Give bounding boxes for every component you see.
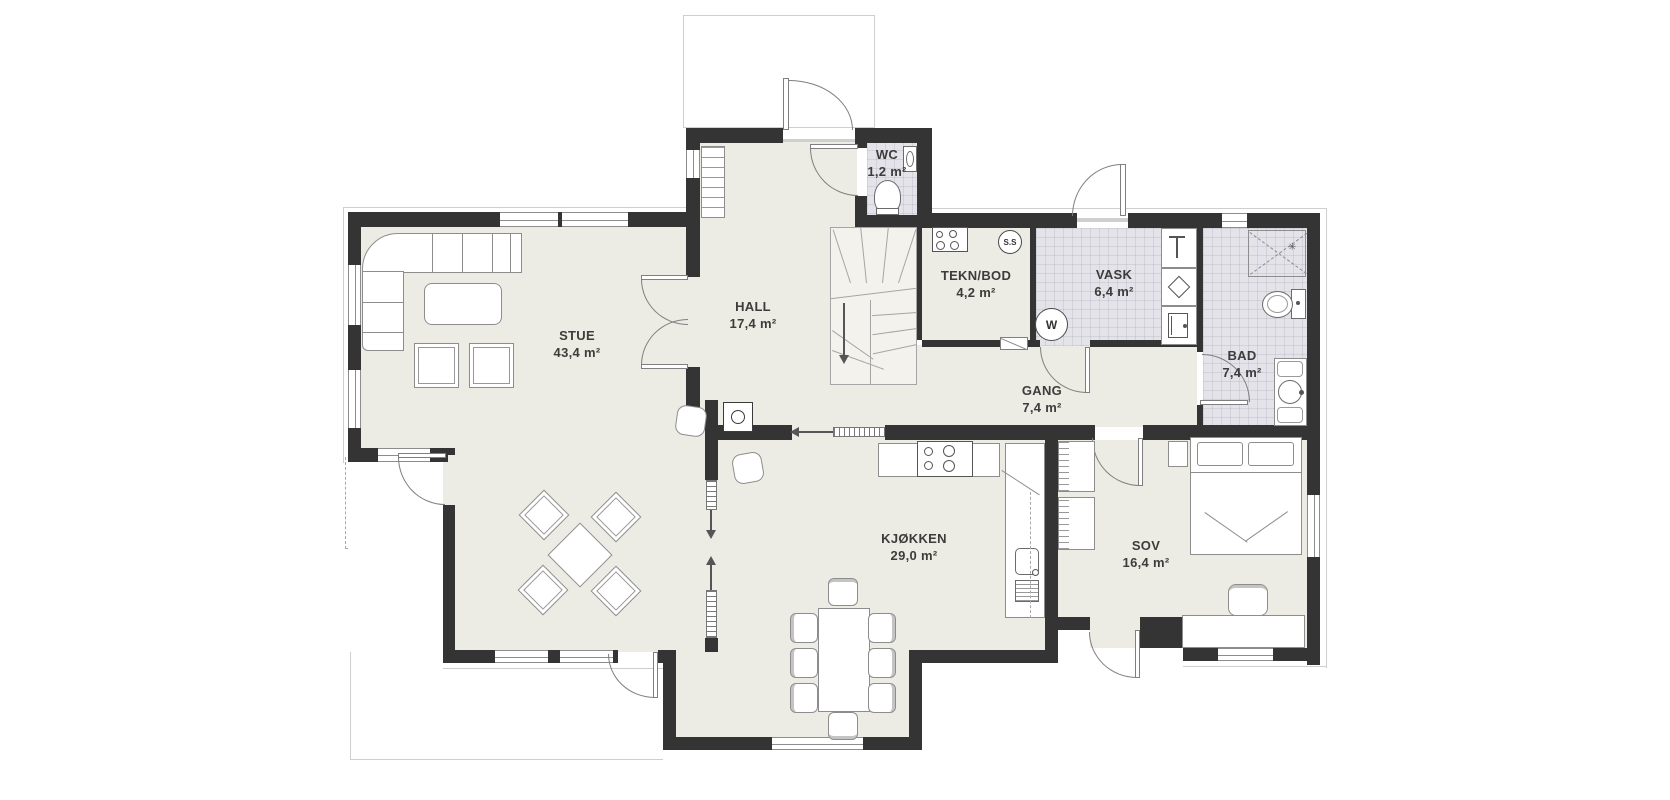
facade-outline bbox=[343, 207, 701, 208]
blanket-line bbox=[1190, 472, 1302, 473]
dining-chair bbox=[868, 648, 896, 678]
faucet-dot bbox=[1032, 569, 1039, 576]
toilet-cistern bbox=[876, 208, 899, 215]
room-label-stue: STUE43,4 m² bbox=[517, 328, 637, 361]
room-label-vask: VASK6,4 m² bbox=[1054, 267, 1174, 300]
wall-segment bbox=[1307, 213, 1320, 495]
room-label-wc: WC1,2 m² bbox=[856, 147, 918, 180]
sliding-door-arrow bbox=[710, 565, 712, 590]
sofa-seat-line bbox=[462, 234, 463, 272]
burner-icon bbox=[936, 231, 943, 238]
burner-icon bbox=[924, 447, 933, 456]
window bbox=[562, 212, 628, 227]
wall-segment bbox=[686, 367, 700, 410]
wall-segment bbox=[705, 638, 718, 652]
burner-icon bbox=[943, 460, 955, 472]
ss-symbol: S.S bbox=[998, 230, 1022, 254]
room-name: BAD bbox=[1227, 348, 1256, 363]
burner-icon bbox=[949, 230, 957, 238]
sofa bbox=[362, 233, 522, 273]
wall-segment bbox=[686, 225, 700, 277]
room-area: 7,4 m² bbox=[1022, 400, 1061, 415]
pillow bbox=[1197, 442, 1243, 466]
room-label-kjokken: KJØKKEN29,0 m² bbox=[853, 531, 975, 564]
arrow-head bbox=[706, 530, 716, 539]
wall-segment bbox=[686, 128, 783, 143]
wall-segment bbox=[443, 505, 455, 652]
wall-segment bbox=[686, 178, 700, 225]
room-area: 17,4 m² bbox=[730, 316, 777, 331]
stool bbox=[674, 404, 708, 438]
sofa-seat-line bbox=[432, 234, 433, 272]
room-area: 16,4 m² bbox=[1123, 555, 1170, 570]
threshold bbox=[1077, 218, 1128, 222]
room-name: GANG bbox=[1022, 383, 1062, 398]
toilet-button bbox=[1296, 301, 1300, 305]
window bbox=[348, 265, 361, 325]
burner-icon bbox=[943, 445, 955, 457]
dishwasher-icon bbox=[1015, 580, 1039, 602]
stool bbox=[731, 451, 766, 486]
washing-machine-symbol: W bbox=[1035, 308, 1068, 341]
dining-chair bbox=[790, 648, 818, 678]
room-area: 43,4 m² bbox=[554, 345, 601, 360]
sliding-door-kjokken bbox=[833, 427, 885, 437]
wall-segment bbox=[663, 737, 772, 750]
dining-chair bbox=[868, 613, 896, 643]
threshold bbox=[783, 139, 855, 142]
terrace-outline bbox=[350, 759, 663, 760]
wall-segment bbox=[855, 196, 867, 215]
sliding-door-arrow bbox=[799, 431, 833, 433]
wall-segment bbox=[705, 440, 718, 480]
sofa-seat-line bbox=[363, 332, 403, 333]
wardrobe bbox=[1058, 441, 1095, 492]
sofa-seat-line bbox=[363, 302, 403, 303]
facade-outline bbox=[343, 207, 344, 463]
window bbox=[348, 370, 361, 428]
facade-outline bbox=[1183, 666, 1326, 667]
vask-counter-cell bbox=[1161, 228, 1197, 268]
dining-chair bbox=[828, 578, 858, 606]
room-area: 6,4 m² bbox=[1094, 284, 1133, 299]
sofa bbox=[362, 271, 404, 351]
fireplace-flue bbox=[731, 410, 745, 424]
room-label-gang: GANG7,4 m² bbox=[982, 383, 1102, 416]
wall-segment bbox=[1045, 440, 1058, 663]
wall-segment bbox=[1197, 228, 1203, 352]
wall-fireplace bbox=[705, 400, 718, 425]
arrow-head bbox=[839, 355, 849, 364]
sofa-seat-line bbox=[492, 234, 493, 272]
door-arc-stue-south bbox=[608, 654, 655, 698]
wall-segment bbox=[1183, 648, 1218, 661]
door-arc-sov-terrace bbox=[1089, 632, 1137, 678]
vanity-faucet-dot bbox=[1299, 390, 1304, 395]
burner-icon bbox=[924, 461, 933, 470]
room-name: SOV bbox=[1132, 538, 1160, 553]
wall-segment bbox=[663, 650, 676, 750]
facade-outline bbox=[932, 208, 1326, 209]
dining-chair bbox=[790, 683, 818, 713]
wall-segment bbox=[348, 212, 500, 227]
room-name: HALL bbox=[735, 299, 771, 314]
dining-chair bbox=[868, 683, 896, 713]
armchair bbox=[469, 343, 514, 388]
faucet-icon bbox=[1169, 236, 1185, 238]
nightstand bbox=[1168, 441, 1188, 467]
room-label-sov: SOV16,4 m² bbox=[1086, 538, 1206, 571]
ss-symbol-label: S.S bbox=[1004, 238, 1017, 247]
wall-segment bbox=[1128, 213, 1222, 228]
vanity-door bbox=[1277, 407, 1303, 423]
burner-icon bbox=[936, 241, 945, 250]
sliding-door-arrow bbox=[710, 510, 712, 530]
room-name: WC bbox=[876, 147, 898, 162]
wall-segment bbox=[1273, 648, 1320, 661]
room-name: STUE bbox=[559, 328, 595, 343]
dining-chair bbox=[790, 613, 818, 643]
window bbox=[1307, 495, 1320, 557]
window bbox=[686, 150, 700, 178]
stair-direction-arrow bbox=[843, 303, 845, 355]
sofa-arm-line bbox=[510, 234, 511, 272]
window bbox=[560, 650, 613, 663]
sliding-door-divider bbox=[706, 480, 717, 510]
door-arc-vask-entrance bbox=[1072, 164, 1122, 216]
sliding-door-divider bbox=[706, 590, 717, 638]
window bbox=[500, 212, 558, 227]
wall-segment bbox=[1058, 617, 1090, 630]
wall-segment bbox=[348, 448, 378, 462]
wall-segment bbox=[885, 425, 1045, 440]
faucet-icon bbox=[1176, 238, 1178, 258]
stair-divider bbox=[870, 300, 871, 385]
dining-chair bbox=[828, 712, 858, 740]
facade-outline bbox=[1326, 208, 1327, 668]
pillow bbox=[1248, 442, 1294, 466]
window bbox=[1222, 213, 1247, 228]
toilet-bowl-inner bbox=[1267, 295, 1288, 313]
window bbox=[495, 650, 548, 663]
room-name: KJØKKEN bbox=[881, 531, 947, 546]
room-label-hall: HALL17,4 m² bbox=[694, 299, 812, 332]
dining-table bbox=[818, 608, 870, 712]
floor-plan-canvas: S.S W ✳ bbox=[0, 0, 1670, 800]
wall-segment bbox=[1036, 340, 1040, 347]
room-area: 4,2 m² bbox=[956, 285, 995, 300]
desk-chair bbox=[1228, 584, 1268, 616]
armchair bbox=[414, 343, 459, 388]
wall-segment bbox=[917, 213, 1077, 228]
arrow-head bbox=[706, 556, 716, 565]
room-name: VASK bbox=[1096, 267, 1132, 282]
shower-head-icon: ✳ bbox=[1288, 242, 1296, 253]
desk bbox=[1182, 615, 1305, 648]
outside-patch bbox=[1058, 630, 1090, 648]
room-label-tekn-bod: TEKN/BOD4,2 m² bbox=[915, 268, 1037, 301]
room-area: 29,0 m² bbox=[891, 548, 938, 563]
burner-icon bbox=[950, 241, 959, 250]
room-area: 1,2 m² bbox=[867, 164, 906, 179]
room-label-bad: BAD7,4 m² bbox=[1182, 348, 1302, 381]
wall-segment bbox=[1197, 405, 1203, 425]
counter-overhang-line bbox=[1030, 492, 1032, 618]
coffee-table bbox=[424, 283, 502, 325]
room-area: 7,4 m² bbox=[1222, 365, 1261, 380]
hall-shelf bbox=[701, 146, 725, 218]
room-name: TEKN/BOD bbox=[941, 268, 1011, 283]
washing-machine-label: W bbox=[1046, 318, 1057, 332]
wall-segment bbox=[548, 650, 560, 663]
wall-segment bbox=[909, 650, 1058, 663]
wall-segment bbox=[1140, 617, 1183, 648]
window bbox=[1218, 648, 1273, 661]
appliance-detail bbox=[1171, 316, 1172, 335]
wall-segment bbox=[1045, 425, 1095, 440]
arrow-head bbox=[790, 427, 799, 437]
appliance-dot bbox=[1183, 324, 1187, 328]
wall-segment bbox=[909, 663, 922, 750]
